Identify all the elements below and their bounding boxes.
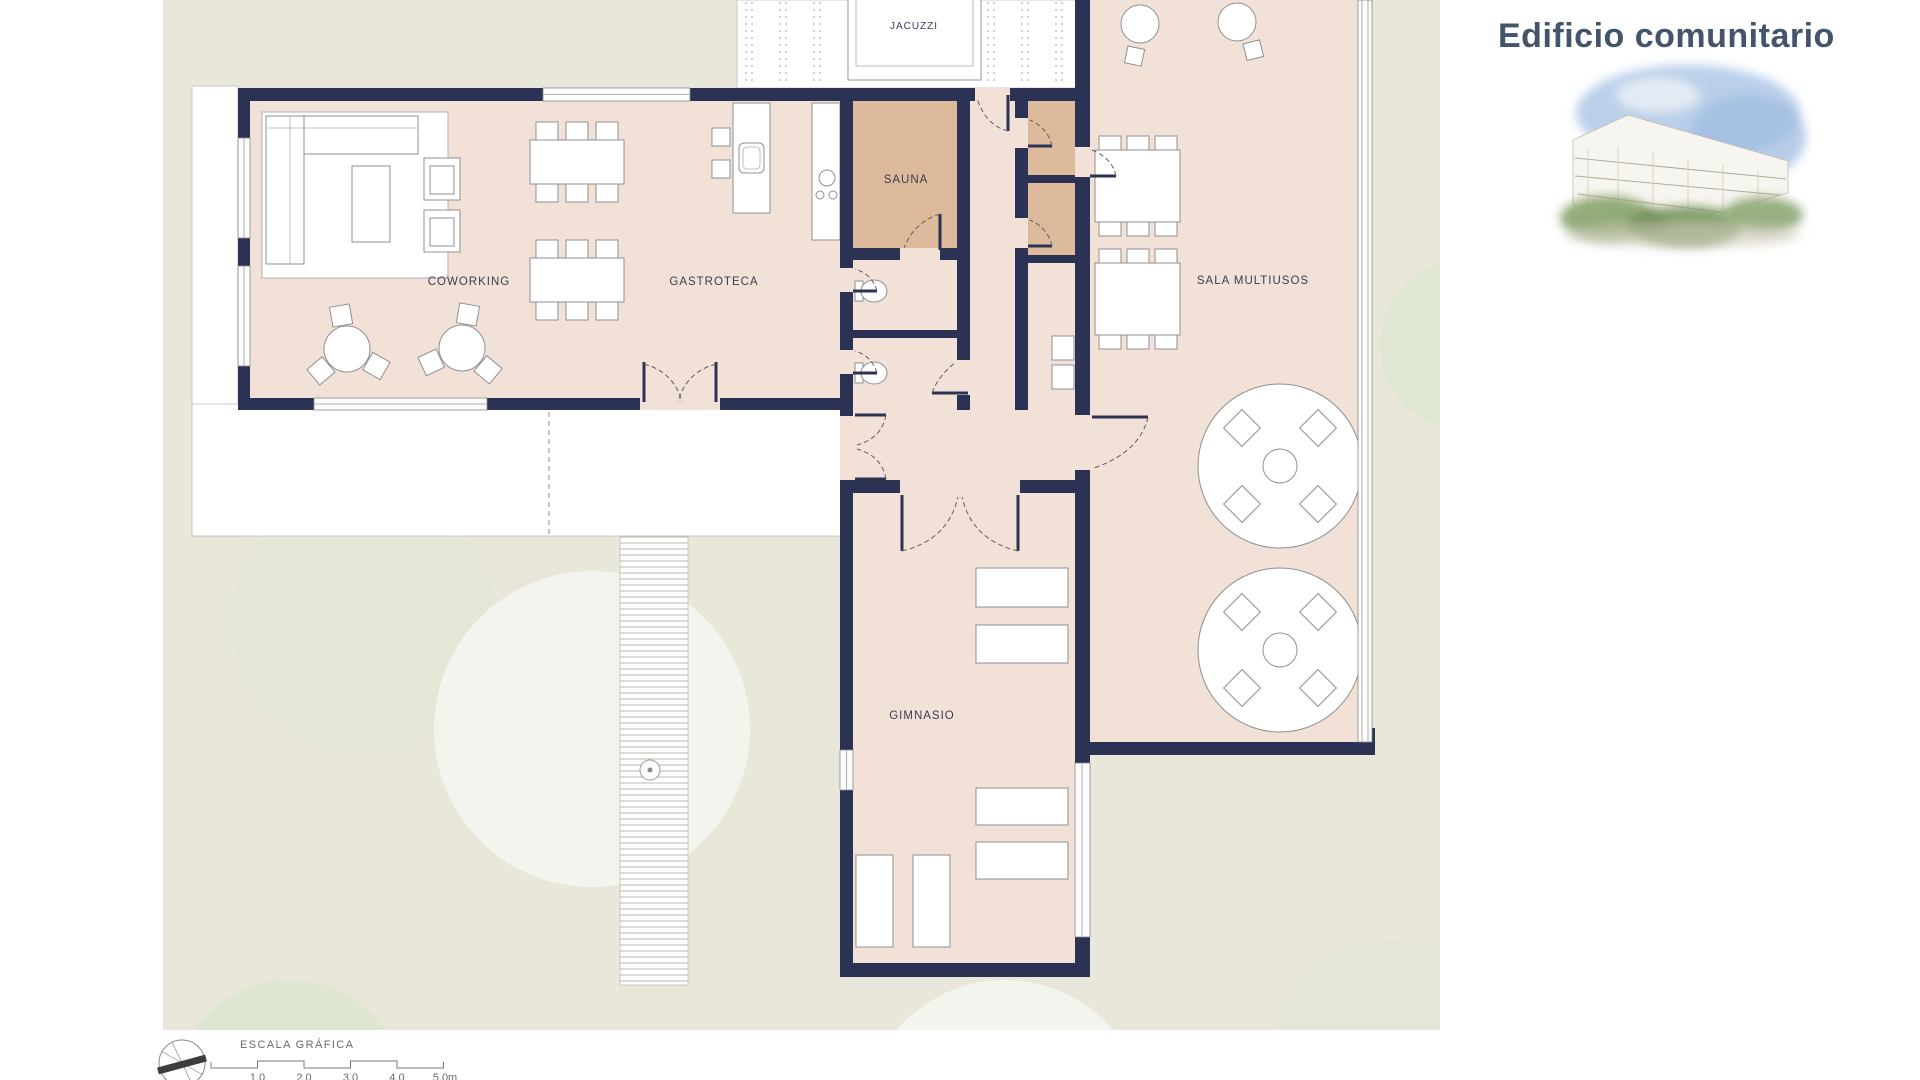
chair [1127,222,1149,236]
chair [536,240,558,258]
chair [1155,335,1177,349]
tree-canopy [1380,260,1550,430]
work-table [530,140,624,184]
chair [1099,249,1121,263]
window [1075,763,1090,937]
chair [566,122,588,140]
chair [596,302,618,320]
tree-trunk-dot [648,768,653,773]
stool [712,128,730,146]
exercise-mat [913,855,950,947]
north-arrow-icon [158,1040,206,1080]
chair [536,302,558,320]
scale-bar: ESCALA GRÁFICA 1.0 2.0 3.0 4.0 5.0m [211,1038,457,1080]
stool [712,160,730,178]
shelf [1052,365,1074,389]
pergola-walkway [620,536,688,985]
room-label-sala-multiusos: SALA MULTIUSOS [1197,275,1309,287]
potted-plant [1121,5,1159,43]
chair [566,240,588,258]
page-title: Edificio comunitario [1498,17,1835,55]
room-label-gimnasio: GIMNASIO [889,710,955,722]
scale-tick: 1.0 [250,1072,265,1080]
room-label-gastroteca: GASTROTECA [669,276,758,288]
changing-room-1 [1028,101,1075,175]
potted-plant [1218,3,1256,41]
scale-bar-caption: ESCALA GRÁFICA [240,1038,354,1051]
jacuzzi-deck: JACUZZI [737,0,1090,88]
scale-tick: 4.0 [389,1072,404,1080]
coffee-table [352,166,390,242]
chair [1155,249,1177,263]
glass-facade [1358,0,1372,742]
chair [596,122,618,140]
work-table [530,258,624,302]
chair [1155,222,1177,236]
chair [596,184,618,202]
chair [596,240,618,258]
armchair-seat [430,166,454,194]
exercise-mat [856,855,893,947]
chair [566,302,588,320]
exercise-mat [976,842,1068,879]
chair [1155,136,1177,150]
chair [1099,136,1121,150]
room-label-coworking: COWORKING [428,276,510,288]
sofa [266,116,304,264]
chair [536,184,558,202]
jacuzzi-tub [848,0,981,80]
scale-tick: 5.0m [433,1072,457,1080]
scale-tick: 3.0 [343,1072,358,1080]
room-label-sauna: SAUNA [884,174,929,186]
tree-canopy [434,571,750,887]
kitchen-counter [812,103,840,240]
exercise-mat [976,625,1068,663]
chair [1127,136,1149,150]
building-illustration [1560,65,1806,248]
shelf [1052,336,1074,360]
round-seating-group [1198,568,1362,732]
scale-tick: 2.0 [296,1072,311,1080]
exercise-mat [976,788,1068,825]
chair [566,184,588,202]
plant-base [1243,40,1264,61]
floor-plan-drawing: JACUZZI [0,0,1920,1080]
round-table [1263,449,1297,483]
chair [536,122,558,140]
scale-bar-ruler [211,1061,444,1068]
floor-plan-page: JACUZZI [0,0,1920,1080]
chair [1099,335,1121,349]
exercise-mat [976,568,1068,607]
round-seating-group [1198,384,1362,548]
plant-base [1124,46,1144,66]
room-label-jacuzzi: JACUZZI [890,21,938,32]
round-table [1263,633,1297,667]
armchair-seat [430,218,454,246]
chair [1127,335,1149,349]
chair [1127,249,1149,263]
chair [1099,222,1121,236]
meeting-table [1095,263,1180,335]
